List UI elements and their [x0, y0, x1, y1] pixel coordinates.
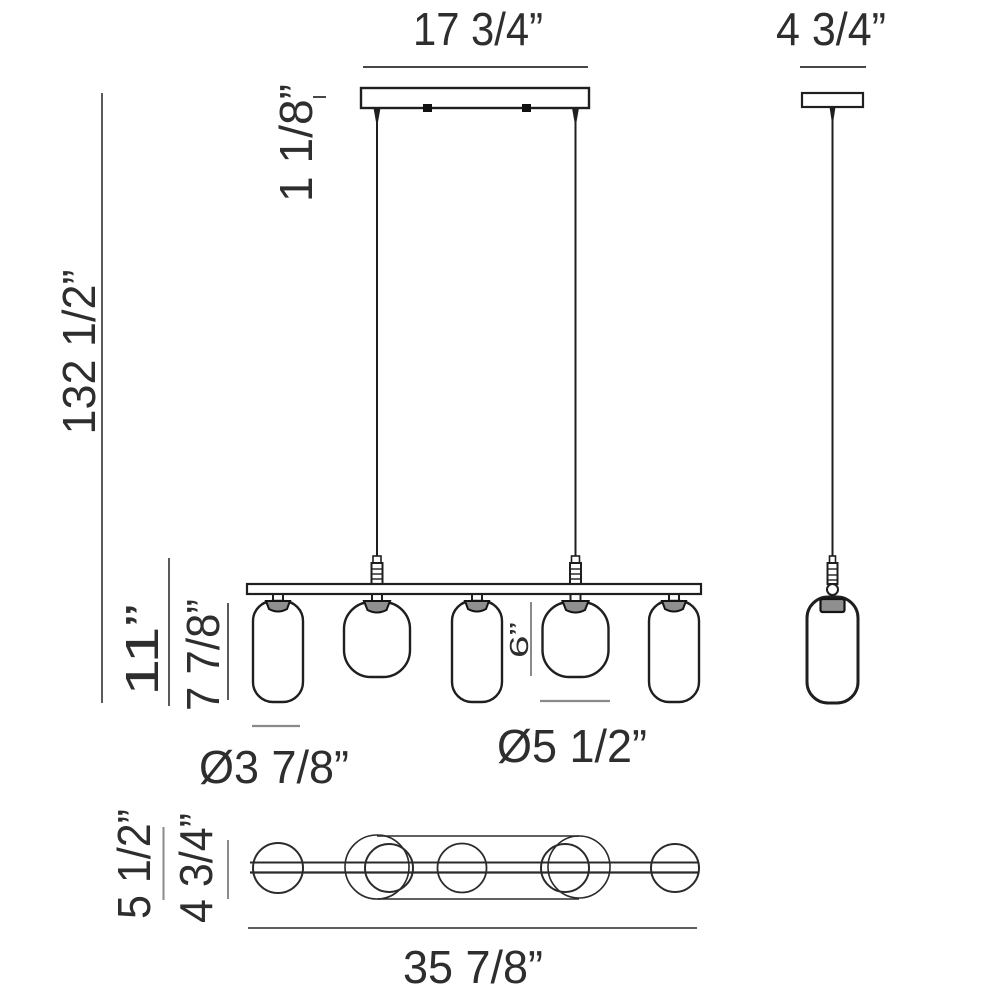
large-glass-diameter-label: Ø5 1/2”: [497, 720, 647, 772]
pendant-socket: [662, 601, 686, 612]
side-pendant-socket: [821, 599, 845, 612]
fixture-bar: [247, 584, 701, 594]
pendant-glass-tall: [253, 601, 303, 702]
plan-large-diameter-label: 5 1/2”: [108, 809, 160, 919]
canopy-length-label: 17 3/4”: [413, 3, 543, 55]
canopy-side-width-label: 4 3/4”: [776, 3, 886, 55]
pendant-2: [344, 594, 410, 677]
plan-end-circle-2: [651, 844, 699, 892]
stem-left: [372, 556, 383, 584]
front-canopy: [361, 88, 589, 108]
canopy-screw-left: [423, 104, 432, 112]
pendant-1: [253, 594, 303, 702]
side-stem-body: [828, 563, 838, 584]
plan-view: [250, 835, 699, 899]
plan-end-circle-1: [253, 843, 303, 893]
side-canopy: [802, 93, 863, 107]
short-glass-height-label: 6”: [504, 622, 534, 658]
pendant-glass-tall: [649, 601, 699, 702]
stem-right: [570, 556, 581, 584]
pendant-socket: [563, 601, 589, 613]
dimension-lines: [102, 67, 866, 928]
overall-length-label: 35 7/8”: [403, 941, 543, 993]
pendant-3: [452, 594, 502, 702]
small-glass-diameter-label: Ø3 7/8”: [199, 741, 349, 793]
canopy-screw-right: [522, 104, 531, 112]
side-view: [802, 93, 863, 703]
plan-small-diameter-label: 4 3/4”: [170, 813, 222, 923]
pendant-drop-label: 11”: [116, 604, 168, 696]
tall-glass-height-label: 7 7/8”: [177, 599, 229, 711]
overall-height-label: 132 1/2”: [53, 270, 105, 435]
pendant-5: [649, 594, 699, 702]
pendant-4: [543, 594, 609, 677]
side-stem-nub: [830, 556, 836, 563]
pendant-socket: [465, 601, 489, 612]
pendant-glass-tall: [452, 601, 502, 702]
side-stem-ball: [827, 584, 838, 595]
drawing-svg: 17 3/4” 4 3/4” 132 1/2” 1 1/8” 11” 7 7/8…: [0, 0, 1000, 1000]
canopy-height-label: 1 1/8”: [270, 84, 322, 202]
plan-center-circle: [438, 844, 487, 893]
dimension-drawing: 17 3/4” 4 3/4” 132 1/2” 1 1/8” 11” 7 7/8…: [0, 0, 1000, 1000]
plan-small-circle-left: [365, 844, 413, 892]
pendant-socket: [266, 601, 290, 612]
pendant-socket: [364, 601, 390, 613]
